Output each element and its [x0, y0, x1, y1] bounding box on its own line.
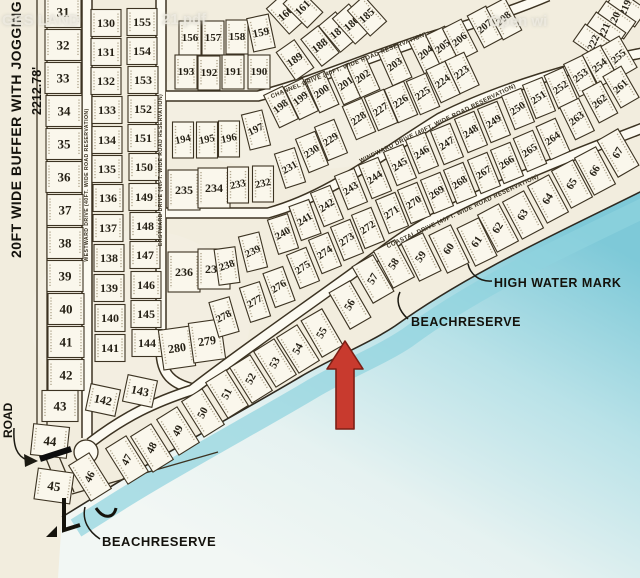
- lot-236: 236: [168, 252, 200, 292]
- beach-reserve-right-label: BEACHRESERVE: [411, 315, 521, 329]
- lot-number: 236: [175, 265, 193, 279]
- lot-42: 42: [48, 360, 84, 391]
- lot-138: 138: [94, 245, 124, 272]
- lot-number: 43: [54, 399, 68, 414]
- lot-146: 146: [131, 272, 161, 299]
- lot-number: 34: [58, 104, 72, 119]
- lot-40: 40: [48, 294, 84, 325]
- lot-number: 40: [60, 302, 73, 317]
- lot-number: 153: [134, 73, 152, 87]
- lot-number: 37: [59, 203, 73, 218]
- lot-235: 235: [168, 170, 200, 210]
- lot-157: 157: [202, 21, 224, 55]
- lot-149: 149: [129, 184, 159, 211]
- lot-number: 158: [229, 31, 246, 43]
- lot-number: 35: [58, 137, 72, 152]
- lot-number: 150: [135, 160, 153, 174]
- road-label-eastward: EASTWARD DRIVE (40FT. WIDE ROAD RESERVAT…: [158, 94, 164, 246]
- lot-39: 39: [47, 261, 83, 292]
- lot-37: 37: [47, 195, 83, 226]
- lot-238: 238: [214, 247, 240, 286]
- lot-141: 141: [95, 335, 125, 362]
- lot-156: 156: [179, 21, 201, 55]
- lot-number: 45: [47, 478, 62, 495]
- plat-map: { "colors": { "paper": "#f2edde", "lot_f…: [0, 0, 640, 578]
- high-water-mark-label: HIGH WATER MARK: [494, 276, 621, 290]
- lot-195: 195: [197, 122, 218, 158]
- lot-number: 146: [137, 278, 155, 292]
- buffer-dimension: 2212.78': [30, 67, 44, 115]
- lot-number: 152: [134, 102, 152, 116]
- lot-number: 145: [137, 307, 155, 321]
- buffer-label: 20FT WIDE BUFFER WITH JOGGING T: [8, 0, 24, 258]
- lot-36: 36: [46, 162, 82, 193]
- lot-number: 156: [182, 32, 199, 44]
- lot-number: 235: [175, 183, 193, 197]
- lot-150: 150: [129, 154, 159, 181]
- lot-number: 41: [60, 335, 73, 350]
- beach-reserve-bottom-label: BEACHRESERVE: [102, 534, 216, 549]
- lot-191: 191: [222, 55, 244, 89]
- lot-158: 158: [226, 20, 248, 54]
- lot-number: 137: [99, 221, 117, 235]
- lot-number: 42: [60, 368, 73, 383]
- lot-number: 131: [97, 45, 115, 59]
- lot-number: 138: [100, 251, 118, 265]
- lot-number: 279: [197, 333, 217, 349]
- lot-number: 33: [57, 71, 71, 86]
- lot-number: 192: [201, 67, 218, 79]
- lot-233: 233: [228, 167, 249, 203]
- lot-number: 141: [101, 341, 119, 355]
- lot-131: 131: [91, 39, 121, 66]
- lot-number: 140: [101, 311, 119, 325]
- lot-number: 149: [135, 190, 153, 204]
- lot-143: 143: [123, 375, 158, 408]
- lot-155: 155: [127, 9, 157, 36]
- road-left-label: ROAD: [1, 402, 15, 438]
- lot-number: 157: [205, 32, 222, 44]
- lot-196: 196: [219, 121, 240, 157]
- lot-142: 142: [86, 384, 121, 417]
- lot-number: 190: [251, 66, 268, 78]
- lot-194: 194: [173, 122, 194, 158]
- lot-38: 38: [47, 228, 83, 259]
- lot-232: 232: [253, 166, 274, 202]
- lot-number: 144: [138, 336, 156, 350]
- lot-number: 136: [99, 191, 117, 205]
- lot-31: 31: [45, 0, 81, 28]
- lot-136: 136: [93, 185, 123, 212]
- lot-number: 32: [57, 38, 70, 53]
- lot-35: 35: [46, 129, 82, 160]
- lot-147: 147: [130, 242, 160, 269]
- lot-133: 133: [92, 97, 122, 124]
- lot-137: 137: [93, 215, 123, 242]
- lot-number: 280: [167, 340, 187, 356]
- lot-134: 134: [92, 127, 122, 154]
- lot-number: 44: [43, 433, 58, 449]
- lot-154: 154: [127, 38, 157, 65]
- lot-number: 31: [57, 5, 70, 20]
- lot-number: 193: [178, 66, 195, 78]
- lot-number: 139: [100, 281, 118, 295]
- lot-number: 132: [97, 74, 115, 88]
- lot-41: 41: [48, 327, 84, 358]
- lot-130: 130: [91, 10, 121, 37]
- lot-153: 153: [128, 67, 158, 94]
- lot-number: 134: [98, 133, 116, 147]
- lot-number: 147: [136, 248, 154, 262]
- lot-number: 234: [205, 181, 223, 195]
- lot-132: 132: [91, 68, 121, 95]
- lot-145: 145: [131, 301, 161, 328]
- lot-139: 139: [94, 275, 124, 302]
- lot-135: 135: [92, 156, 122, 183]
- lot-144: 144: [132, 330, 162, 357]
- lot-152: 152: [128, 96, 158, 123]
- lot-140: 140: [95, 305, 125, 332]
- lot-number: 151: [134, 131, 152, 145]
- lot-number: 154: [133, 44, 151, 58]
- road-label-westward: WESTWARD DRIVE (40FT. WIDE ROAD RESERVAT…: [84, 108, 90, 261]
- lot-number: 130: [97, 16, 115, 30]
- lot-32: 32: [45, 30, 81, 61]
- lot-number: 36: [58, 170, 72, 185]
- lot-number: 148: [136, 219, 154, 233]
- lot-number: 133: [98, 103, 116, 117]
- lot-34: 34: [46, 96, 82, 127]
- lot-number: 135: [98, 162, 116, 176]
- lot-193: 193: [175, 55, 197, 89]
- lot-number: 155: [133, 15, 151, 29]
- lot-192: 192: [198, 56, 220, 90]
- lot-number: 191: [225, 66, 242, 78]
- lot-43: 43: [42, 391, 78, 422]
- lot-234: 234: [198, 168, 230, 208]
- lot-148: 148: [130, 213, 160, 240]
- lot-151: 151: [128, 125, 158, 152]
- lot-number: 39: [59, 269, 73, 284]
- lot-190: 190: [248, 55, 270, 89]
- lot-number: 38: [59, 236, 73, 251]
- lot-33: 33: [45, 63, 81, 94]
- lot-45: 45: [34, 468, 74, 504]
